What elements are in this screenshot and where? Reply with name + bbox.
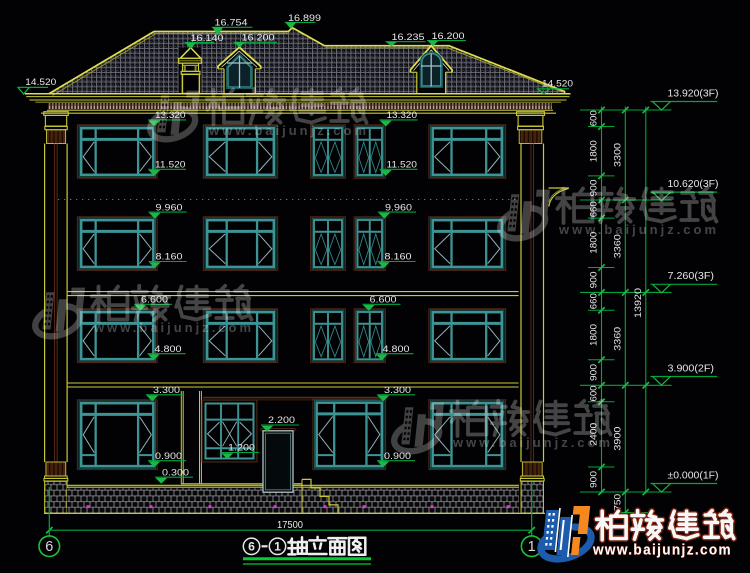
svg-text:3.900(2F): 3.900(2F) — [668, 362, 715, 374]
svg-text:6: 6 — [248, 540, 255, 554]
svg-text:1800: 1800 — [589, 324, 599, 346]
svg-text:16.200: 16.200 — [432, 31, 465, 41]
svg-text:3900: 3900 — [613, 427, 623, 451]
svg-text:7.260(3F): 7.260(3F) — [668, 270, 715, 282]
svg-text:www.baijunjz.com: www.baijunjz.com — [208, 123, 369, 138]
svg-text:www.baijunjz.com: www.baijunjz.com — [93, 320, 254, 335]
svg-text:1800: 1800 — [589, 140, 599, 162]
svg-text:17500: 17500 — [277, 520, 304, 531]
svg-text:0.300: 0.300 — [162, 467, 189, 477]
svg-text:1.200: 1.200 — [228, 443, 255, 453]
svg-text:3.300: 3.300 — [153, 385, 180, 395]
svg-text:1: 1 — [274, 540, 281, 554]
svg-text:900: 900 — [589, 471, 599, 488]
svg-text:16.899: 16.899 — [288, 13, 321, 23]
svg-text:3360: 3360 — [613, 327, 623, 351]
svg-text:www.baijunjz.com: www.baijunjz.com — [452, 435, 613, 450]
svg-text:10.620(3F): 10.620(3F) — [668, 178, 719, 190]
svg-text:16.140: 16.140 — [191, 33, 224, 43]
svg-text:±0.000(1F): ±0.000(1F) — [668, 469, 719, 481]
svg-text:8.160: 8.160 — [385, 252, 412, 262]
svg-text:3300: 3300 — [613, 143, 623, 167]
svg-text:1: 1 — [528, 539, 536, 555]
svg-text:4.800: 4.800 — [383, 344, 410, 354]
svg-text:www.baijunjz.com: www.baijunjz.com — [558, 222, 719, 237]
svg-text:16.200: 16.200 — [242, 33, 275, 43]
svg-text:www.baijunjz.com: www.baijunjz.com — [592, 542, 732, 559]
svg-text:660: 660 — [589, 293, 599, 309]
svg-text:16.754: 16.754 — [215, 18, 248, 28]
svg-text:6: 6 — [45, 539, 53, 555]
svg-text:13.320: 13.320 — [387, 110, 418, 120]
svg-text:9.960: 9.960 — [156, 202, 183, 212]
svg-text:3.300: 3.300 — [384, 385, 411, 395]
svg-text:2.200: 2.200 — [268, 415, 295, 425]
svg-text:9.960: 9.960 — [385, 202, 412, 212]
svg-text:3360: 3360 — [613, 234, 623, 258]
svg-text:8.160: 8.160 — [156, 252, 183, 262]
svg-text:900: 900 — [589, 364, 599, 381]
svg-text:11.520: 11.520 — [155, 160, 186, 170]
svg-text:14.520: 14.520 — [542, 78, 573, 88]
svg-text:13.920(3F): 13.920(3F) — [668, 87, 719, 99]
svg-text:0.900: 0.900 — [155, 451, 182, 461]
svg-text:600: 600 — [589, 110, 599, 126]
svg-text:900: 900 — [589, 271, 599, 288]
svg-text:600: 600 — [589, 386, 599, 402]
svg-text:4.800: 4.800 — [155, 344, 182, 354]
svg-text:16.235: 16.235 — [392, 32, 425, 42]
svg-text:11.520: 11.520 — [387, 160, 418, 170]
svg-text:6.600: 6.600 — [370, 295, 397, 305]
svg-text:13920: 13920 — [633, 288, 643, 318]
svg-text:14.520: 14.520 — [25, 77, 56, 87]
